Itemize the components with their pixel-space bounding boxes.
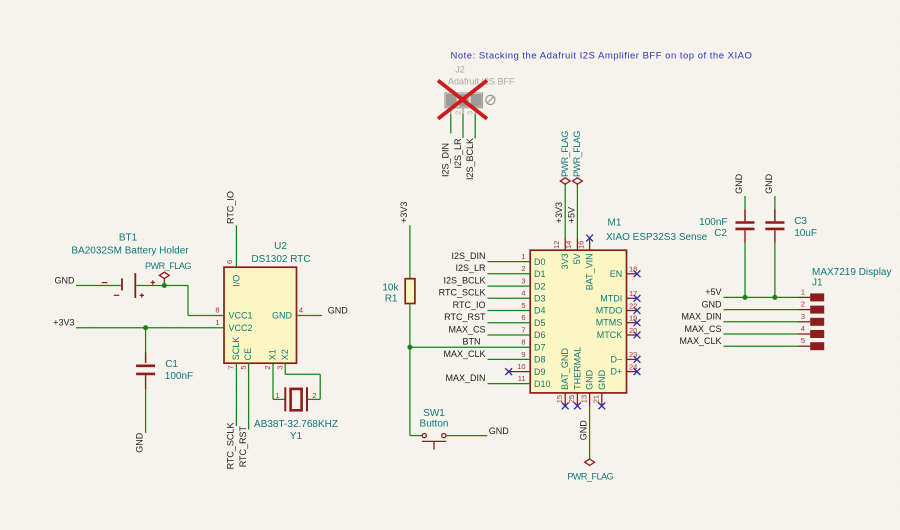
svg-text:11: 11: [518, 374, 526, 383]
svg-text:MAX_DIN: MAX_DIN: [681, 312, 721, 322]
svg-text:3: 3: [466, 111, 475, 115]
svg-text:5V: 5V: [572, 253, 582, 264]
svg-text:D4: D4: [534, 306, 546, 316]
svg-text:4: 4: [801, 324, 805, 333]
svg-text:D+: D+: [611, 367, 623, 377]
svg-text:1: 1: [215, 318, 219, 327]
svg-text:J1: J1: [812, 278, 823, 289]
svg-text:J2: J2: [455, 65, 465, 75]
svg-text:2: 2: [453, 111, 462, 115]
svg-text:M1: M1: [608, 218, 622, 229]
svg-text:D3: D3: [534, 294, 546, 304]
svg-text:3: 3: [521, 277, 525, 286]
svg-text:13: 13: [579, 395, 588, 403]
svg-text:Button: Button: [420, 419, 449, 430]
svg-text:12: 12: [552, 241, 561, 249]
svg-text:MAX_CS: MAX_CS: [448, 324, 485, 334]
svg-text:I2S_BCLK: I2S_BCLK: [465, 138, 475, 180]
svg-text:RTC_IO: RTC_IO: [453, 300, 486, 310]
svg-text:GND: GND: [579, 420, 589, 441]
svg-text:XIAO ESP32S3 Sense: XIAO ESP32S3 Sense: [606, 232, 708, 243]
svg-text:I2S_LR: I2S_LR: [453, 138, 463, 169]
svg-text:15: 15: [555, 395, 564, 403]
svg-text:100nF: 100nF: [165, 371, 193, 382]
svg-text:C3: C3: [794, 216, 807, 227]
svg-text:PWR_FLAG: PWR_FLAG: [560, 131, 570, 177]
svg-text:+5V: +5V: [705, 287, 721, 297]
svg-text:VCC2: VCC2: [229, 323, 253, 333]
svg-text:AB38T-32.768KHZ: AB38T-32.768KHZ: [254, 419, 338, 430]
svg-text:10k: 10k: [382, 283, 399, 294]
svg-text:U2: U2: [274, 241, 287, 252]
svg-text:BT1: BT1: [119, 233, 138, 244]
svg-text:GND: GND: [764, 173, 774, 194]
svg-text:9: 9: [521, 350, 525, 359]
svg-text:MTMS: MTMS: [596, 318, 623, 328]
svg-text:+3V3: +3V3: [53, 318, 74, 328]
svg-text:MTCK: MTCK: [597, 330, 623, 340]
svg-text:8: 8: [215, 306, 219, 315]
svg-text:Note: Stacking the Adafruit I2: Note: Stacking the Adafruit I2S Amplifie…: [451, 50, 753, 61]
svg-text:D8: D8: [534, 355, 546, 365]
svg-text:GND: GND: [135, 432, 145, 453]
svg-text:X1: X1: [268, 349, 278, 360]
svg-text:19: 19: [629, 314, 637, 323]
svg-text:PWR_FLAG: PWR_FLAG: [145, 261, 191, 271]
svg-text:MAX_CS: MAX_CS: [684, 324, 721, 334]
svg-text:RTC_SCLK: RTC_SCLK: [226, 423, 236, 470]
svg-text:3V3: 3V3: [560, 253, 570, 269]
svg-text:16: 16: [576, 241, 585, 249]
svg-text:10uF: 10uF: [794, 228, 817, 239]
svg-text:PWR_FLAG: PWR_FLAG: [572, 131, 582, 177]
svg-text:GND: GND: [734, 173, 744, 194]
svg-text:RTC_IO: RTC_IO: [225, 191, 235, 224]
svg-text:I/O: I/O: [232, 275, 242, 287]
svg-text:D5: D5: [534, 318, 546, 328]
svg-text:BAT_VIN: BAT_VIN: [584, 253, 594, 290]
svg-text:CE: CE: [243, 348, 253, 361]
svg-text:18: 18: [629, 265, 637, 274]
svg-text:2: 2: [801, 300, 805, 309]
svg-text:1: 1: [521, 252, 525, 261]
svg-text:7: 7: [227, 366, 236, 370]
svg-text:RTC_RST: RTC_RST: [444, 312, 486, 322]
svg-text:C1: C1: [165, 359, 178, 370]
svg-text:20: 20: [629, 326, 637, 335]
svg-text:8: 8: [521, 338, 525, 347]
svg-text:4: 4: [521, 289, 525, 298]
svg-text:MTDI: MTDI: [600, 293, 622, 303]
svg-text:C2: C2: [714, 228, 727, 239]
svg-text:SW1: SW1: [423, 408, 445, 419]
svg-text:D0: D0: [534, 257, 546, 267]
svg-text:GND: GND: [55, 276, 76, 286]
svg-text:BA2032SM Battery Holder: BA2032SM Battery Holder: [71, 246, 189, 257]
svg-text:MAX_DIN: MAX_DIN: [445, 373, 485, 383]
svg-text:2: 2: [312, 391, 316, 400]
svg-text:+3V3: +3V3: [399, 202, 409, 223]
svg-text:+5V: +5V: [566, 207, 576, 223]
svg-text:6: 6: [225, 260, 234, 264]
svg-text:GND: GND: [328, 306, 349, 316]
svg-text:3: 3: [801, 312, 805, 321]
svg-text:2: 2: [521, 264, 525, 273]
svg-text:10: 10: [517, 362, 525, 371]
svg-text:MAX_CLK: MAX_CLK: [443, 349, 485, 359]
svg-text:I2S_BCLK: I2S_BCLK: [443, 276, 485, 286]
svg-text:I2S_DIN: I2S_DIN: [441, 143, 451, 177]
svg-text:+3V3: +3V3: [554, 202, 564, 223]
svg-text:17: 17: [629, 289, 637, 298]
svg-text:2: 2: [263, 366, 272, 370]
svg-text:D10: D10: [534, 379, 551, 389]
svg-text:GND: GND: [272, 311, 293, 321]
svg-text:I2S_LR: I2S_LR: [455, 263, 486, 273]
svg-text:GND: GND: [585, 369, 595, 390]
svg-text:RTC_RST: RTC_RST: [238, 425, 248, 467]
svg-text:3: 3: [275, 366, 284, 370]
svg-text:5: 5: [239, 366, 248, 370]
svg-text:X2: X2: [280, 349, 290, 360]
svg-text:GND: GND: [597, 369, 607, 390]
svg-text:MAX_CLK: MAX_CLK: [679, 336, 721, 346]
svg-text:VCC1: VCC1: [229, 311, 253, 321]
svg-text:D9: D9: [534, 367, 546, 377]
svg-text:GND: GND: [702, 299, 723, 309]
svg-text:RTC_SCLK: RTC_SCLK: [439, 288, 486, 298]
svg-text:MTDO: MTDO: [596, 306, 623, 316]
svg-text:BTN: BTN: [463, 337, 481, 347]
svg-text:MAX7219 Display: MAX7219 Display: [812, 267, 891, 278]
svg-text:D6: D6: [534, 330, 546, 340]
svg-text:D7: D7: [534, 342, 546, 352]
svg-text:1: 1: [275, 391, 279, 400]
svg-text:DS1302 RTC: DS1302 RTC: [251, 254, 310, 265]
svg-text:I2S_DIN: I2S_DIN: [451, 251, 485, 261]
svg-text:24: 24: [629, 362, 637, 371]
svg-text:BAT_GND: BAT_GND: [560, 348, 570, 390]
svg-text:7: 7: [521, 325, 525, 334]
svg-text:R1: R1: [385, 294, 398, 305]
svg-text:PWR_FLAG: PWR_FLAG: [567, 472, 613, 482]
svg-text:Y1: Y1: [290, 431, 303, 442]
svg-text:14: 14: [564, 241, 573, 249]
svg-text:THERMAL: THERMAL: [572, 347, 582, 390]
svg-text:D2: D2: [534, 281, 546, 291]
svg-text:1: 1: [801, 287, 805, 296]
svg-text:23: 23: [629, 350, 637, 359]
svg-text:6: 6: [521, 313, 525, 322]
svg-text:4: 4: [299, 306, 303, 315]
svg-text:SCLK: SCLK: [231, 337, 241, 361]
svg-text:25: 25: [567, 395, 576, 403]
svg-text:100nF: 100nF: [699, 217, 727, 228]
svg-text:5: 5: [521, 301, 525, 310]
svg-text:5: 5: [801, 336, 805, 345]
svg-text:21: 21: [592, 395, 601, 403]
svg-text:D1: D1: [534, 269, 546, 279]
svg-text:D−: D−: [611, 354, 623, 364]
svg-text:22: 22: [629, 301, 637, 310]
svg-text:EN: EN: [610, 269, 623, 279]
svg-text:GND: GND: [489, 426, 510, 436]
